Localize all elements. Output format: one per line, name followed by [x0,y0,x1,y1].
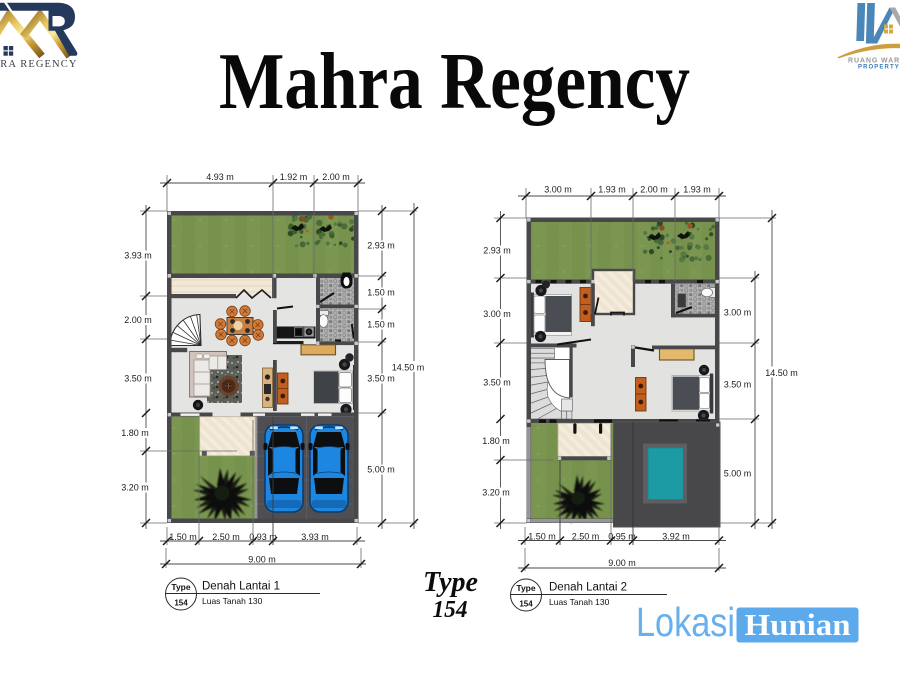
svg-text:RUANG WARNA: RUANG WARNA [848,58,900,65]
svg-text:3.00 m: 3.00 m [483,309,511,319]
svg-text:3.20 m: 3.20 m [121,483,149,493]
svg-text:0.95 m: 0.95 m [608,532,636,542]
svg-text:3.00 m: 3.00 m [544,185,572,195]
svg-text:3.92 m: 3.92 m [662,532,690,542]
svg-text:Denah Lantai 2: Denah Lantai 2 [549,582,627,594]
svg-text:3.50 m: 3.50 m [483,378,511,388]
svg-text:Hunian: Hunian [745,607,851,642]
svg-text:1.50 m: 1.50 m [367,288,395,298]
svg-text:9.00 m: 9.00 m [608,558,636,568]
svg-text:3.50 m: 3.50 m [724,380,752,390]
svg-text:3.50 m: 3.50 m [124,374,152,384]
svg-text:1.50 m: 1.50 m [367,320,395,330]
svg-text:Type: Type [171,582,190,592]
svg-text:1.50 m: 1.50 m [528,532,556,542]
svg-text:154: 154 [174,599,188,608]
svg-text:3.93 m: 3.93 m [301,532,329,542]
svg-text:4.93 m: 4.93 m [206,172,234,182]
svg-text:Luas Tanah 130: Luas Tanah 130 [549,597,610,607]
svg-text:Type: Type [516,583,535,593]
svg-text:1.80 m: 1.80 m [482,436,510,446]
svg-text:2.93 m: 2.93 m [483,246,511,256]
svg-text:1.93 m: 1.93 m [598,185,626,195]
svg-text:0.93 m: 0.93 m [249,532,277,542]
svg-text:Type: Type [423,566,478,598]
svg-text:2.50 m: 2.50 m [212,532,240,542]
svg-text:MAHRA REGENCY: MAHRA REGENCY [0,59,78,70]
svg-text:154: 154 [433,597,468,623]
svg-text:9.00 m: 9.00 m [248,555,276,565]
svg-text:2.93 m: 2.93 m [367,241,395,251]
svg-text:2.00 m: 2.00 m [640,185,668,195]
svg-text:2.00 m: 2.00 m [322,172,350,182]
svg-text:PROPERTY: PROPERTY [858,65,900,71]
svg-text:1.93 m: 1.93 m [683,185,711,195]
svg-text:3.20 m: 3.20 m [482,488,510,498]
svg-text:Lokasi: Lokasi [636,599,735,645]
svg-text:154: 154 [519,600,533,609]
svg-text:3.00 m: 3.00 m [724,308,752,318]
svg-text:3.93 m: 3.93 m [124,251,152,261]
svg-text:5.00 m: 5.00 m [367,465,395,475]
svg-text:1.80 m: 1.80 m [121,428,149,438]
svg-text:Luas Tanah 130: Luas Tanah 130 [202,596,263,606]
svg-text:14.50 m: 14.50 m [392,363,425,373]
svg-text:Mahra Regency: Mahra Regency [219,36,690,126]
svg-text:2.00 m: 2.00 m [124,315,152,325]
svg-text:5.00 m: 5.00 m [724,469,752,479]
svg-text:1.50 m: 1.50 m [169,532,197,542]
svg-text:3.50 m: 3.50 m [367,374,395,384]
svg-text:Denah Lantai 1: Denah Lantai 1 [202,581,280,593]
svg-text:1.92 m: 1.92 m [280,172,308,182]
svg-text:2.50 m: 2.50 m [572,532,600,542]
svg-text:14.50 m: 14.50 m [765,368,798,378]
